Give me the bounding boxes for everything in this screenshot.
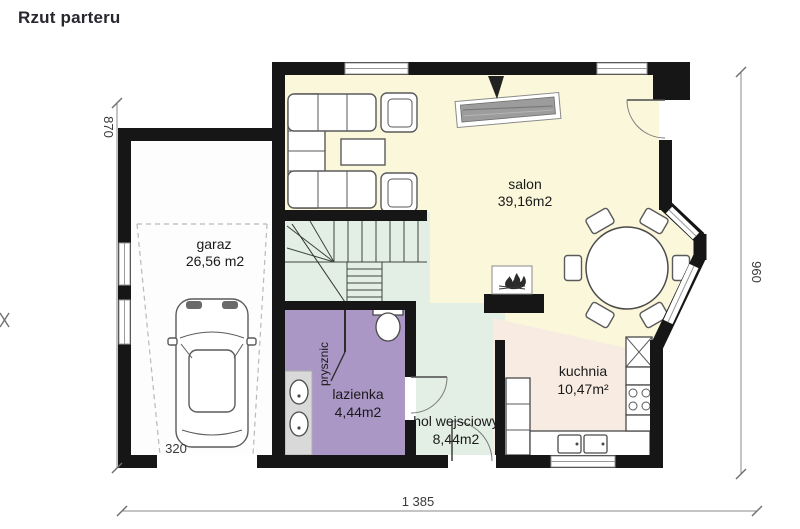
garage-label: garaz — [196, 236, 231, 252]
garage-area: 26,56 m2 — [186, 253, 245, 269]
window-kitchen — [551, 456, 615, 467]
wall-bathroom-hall-upper — [405, 301, 416, 377]
entry-hall-label: hol wejsciowy — [413, 413, 499, 429]
right-height-dimension: 960 — [749, 261, 764, 283]
living-room-label: salon — [508, 176, 541, 192]
window-top-1 — [345, 63, 408, 74]
car-headlight-right — [222, 301, 238, 309]
garage-door-opening — [157, 455, 257, 468]
bathroom-label: lazienka — [332, 386, 384, 402]
room-stairs-area — [282, 212, 430, 310]
left-height-dimension: 870 — [101, 116, 116, 138]
wall-hall-kitchen — [495, 340, 505, 456]
car-mirror-left — [168, 338, 177, 345]
wall-house-left — [272, 62, 285, 468]
wall-right-upper — [659, 140, 672, 210]
wall-kitchen-right — [650, 340, 663, 468]
window-garage-2 — [119, 300, 130, 344]
floor-plan-page: Rzut parteru — [0, 0, 800, 529]
wall-garage-top — [118, 128, 285, 141]
sink-icon — [290, 380, 308, 404]
kitchen-counter-bottom — [530, 431, 650, 456]
dining-table — [586, 227, 668, 309]
window-garage-1 — [119, 243, 130, 285]
kitchen-label: kuchnia — [559, 363, 607, 379]
entry-hall-area: 8,44m2 — [433, 431, 480, 447]
dimension-bottom: 1 385 — [117, 494, 762, 516]
kitchen-cabinet-column-left — [506, 378, 530, 455]
wall-stairs — [283, 210, 427, 221]
dining-chair — [565, 256, 582, 281]
armchair-bottom — [381, 173, 417, 212]
dimension-right: 960 — [736, 67, 764, 479]
car-icon — [168, 299, 256, 447]
car-mirror-right — [247, 338, 256, 345]
window-top-2 — [597, 63, 647, 74]
coffee-table — [341, 139, 385, 165]
wall-garage-left — [118, 128, 131, 468]
shower-label: prysznic — [317, 342, 331, 386]
armchair-top — [381, 93, 417, 132]
floor-plan-canvas: garaz 26,56 m2 salon 39,16m2 kuchnia 10,… — [0, 0, 800, 529]
wall-corner-top-right — [653, 62, 690, 100]
kitchen-counter-right — [626, 337, 652, 431]
wall-bathroom-top — [282, 301, 410, 310]
living-room-area: 39,16m2 — [498, 193, 553, 209]
car-headlight-left — [186, 301, 202, 309]
stove-icon — [626, 385, 652, 415]
sink-icon — [290, 412, 308, 436]
bottom-width-dimension: 1 385 — [402, 494, 435, 509]
garage-door-dimension: 320 — [165, 441, 187, 456]
car-roof — [189, 350, 235, 412]
kitchen-area: 10,47m² — [557, 381, 609, 397]
bathroom-area: 4,44m2 — [335, 404, 382, 420]
dimension-tick-edge — [0, 313, 9, 327]
